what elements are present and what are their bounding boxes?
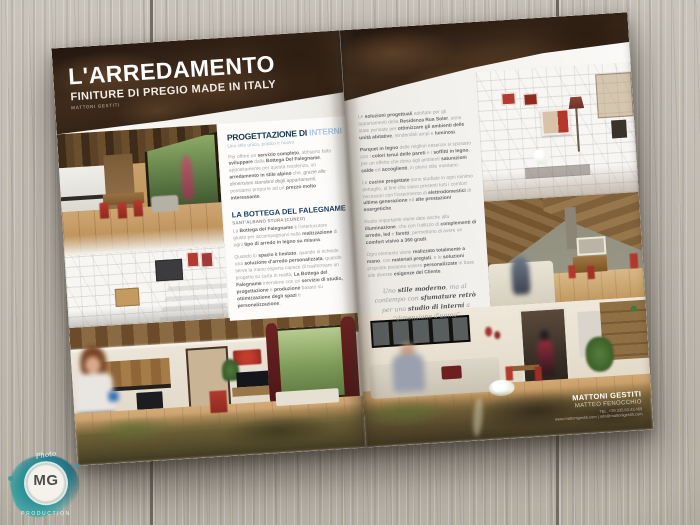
logo-initials: MG: [6, 472, 86, 489]
article-paragraph: Per offrire un servizio completo, abbiam…: [228, 148, 339, 203]
article-paragraph: Parquet in legno delle migliori essenze …: [360, 141, 474, 176]
mg-production-logo: Photo MG PRODUCTION: [6, 446, 86, 522]
heading-light: INTERNI: [307, 125, 342, 137]
red-chair: [209, 390, 228, 413]
oven: [137, 391, 164, 409]
render-open-living-image: [69, 310, 366, 466]
red-art-frame: [523, 93, 538, 106]
wood-crate: [115, 288, 140, 307]
sketch-tv: [155, 259, 184, 281]
article-paragraph: Ruolo importante viene dato anche alla i…: [364, 214, 478, 249]
pull-quote: Uno stile moderno, ma al contempo con sf…: [369, 281, 483, 325]
red-chair: [534, 366, 542, 380]
lamp-shade: [568, 96, 584, 109]
sketch-oven: [611, 120, 628, 139]
red-art-frame: [186, 252, 199, 268]
left-text-column: PROGETTAZIONE DI INTERNI Uno stile unico…: [217, 116, 357, 321]
article-paragraph: La Bottega del Falegname è l'interlocuto…: [233, 223, 342, 251]
red-chair: [587, 266, 595, 279]
render-sketch-livingroom-image: [475, 62, 638, 202]
corridor: [519, 307, 571, 386]
red-pillow: [441, 366, 462, 381]
sketch-cabinet: [595, 73, 634, 119]
red-chair: [117, 202, 127, 219]
mountain-path: [472, 397, 484, 437]
article-paragraph: Ogni elemento viene realizzato totalment…: [366, 246, 480, 281]
red-art-frame: [502, 93, 517, 106]
logo-splash-drop: [76, 464, 80, 468]
right-page: MATTONI GESTITI MATTEO FENOCCHIO TEL. +3…: [339, 12, 653, 447]
render-attic-living-image: [483, 192, 645, 307]
red-wall-flowers: [485, 326, 493, 336]
white-flowers: [533, 148, 551, 166]
wall-mirror: [576, 236, 606, 255]
render-kitchen-dining-image: [57, 124, 224, 256]
article-paragraph: Quando lo spazio è limitato, quando si r…: [234, 249, 345, 311]
logo-caption: PRODUCTION: [6, 511, 86, 517]
red-chair: [505, 366, 513, 380]
lamp-pole: [576, 107, 581, 151]
red-chair: [133, 200, 143, 217]
blurred-sitting-person: [388, 343, 428, 393]
red-art-frame: [201, 252, 214, 268]
render-sketch-interior-image: [65, 246, 229, 328]
blue-cup: [108, 391, 119, 402]
wood-background: L'ARREDAMENTO FINITURE DI PREGIO MADE IN…: [0, 0, 700, 525]
tv-artwork: [540, 108, 570, 136]
right-text-column: Le soluzioni progettuali adottate per gl…: [344, 102, 491, 330]
red-wall-flowers: [494, 331, 500, 339]
left-page: L'ARREDAMENTO FINITURE DI PREGIO MADE IN…: [51, 30, 365, 465]
red-chair: [630, 253, 639, 268]
red-chair: [568, 265, 576, 278]
article-paragraph: Le cucine progettate sono studiate in og…: [362, 174, 476, 216]
red-chair: [100, 202, 110, 219]
article-paragraph: Le soluzioni progettuali adottate per gl…: [358, 108, 472, 143]
figure-body: [392, 353, 426, 392]
contact-block: MATTONI GESTITI MATTEO FENOCCHIO TEL. +3…: [553, 389, 642, 421]
green-plant: [584, 336, 615, 372]
gray-sofa: [151, 195, 179, 213]
magazine-spread: L'ARREDAMENTO FINITURE DI PREGIO MADE IN…: [51, 12, 653, 465]
